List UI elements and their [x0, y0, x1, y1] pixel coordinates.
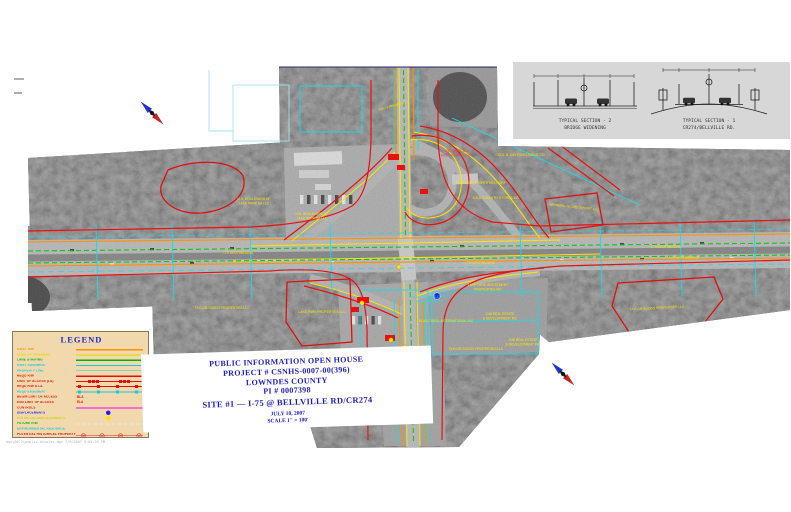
legend-sample-text: BLA	[77, 395, 83, 399]
legend-sample	[76, 416, 143, 421]
section1-title: TYPICAL SECTION - 1	[683, 118, 736, 124]
map-label: LAKE PARK GA LLC	[239, 202, 270, 206]
map-label: BRIDGE WIDENING	[441, 154, 472, 158]
highway-label: I-75 SOUTHBOUND	[651, 245, 682, 249]
map-label: PROPERTIES INC	[416, 300, 444, 304]
legend-label: LANE STRIPING	[17, 359, 76, 362]
legend-label: FUTURE R/W	[17, 422, 76, 425]
highway-label: I-75 NORTHBOUND	[465, 261, 496, 265]
section2-bridge-diagram	[533, 74, 637, 108]
legend-label: POTENTIAL DISPLACEMENTS	[17, 417, 76, 420]
historic-property-symbol	[76, 433, 143, 438]
legend-sample	[76, 405, 143, 410]
section1-subtitle: CR274/BELLVILLE RD.	[683, 125, 736, 131]
legend-sample	[76, 379, 143, 384]
map-label: EASTGATE PROPERTIES CORP	[456, 181, 507, 185]
boundary-lines-cyan	[209, 70, 289, 141]
legend-sample	[76, 368, 143, 373]
map-label: U.S. BOULEVARD OF	[296, 212, 329, 216]
map-label: LAKE PARK INVESTMENT	[410, 295, 450, 299]
legend-sample	[76, 384, 143, 389]
legend-label: EXIST R/W	[17, 348, 76, 351]
section2-subtitle: BRIDGE WIDENING	[564, 125, 606, 131]
map-label: NEW RAMP 'B' &	[443, 149, 469, 153]
legend-sample	[76, 432, 143, 437]
map-label: JNB REAL ESTATE	[486, 312, 516, 316]
map-label: TAYLOR-SUGGS PROPERTIES LLC	[195, 306, 250, 310]
legend-sample	[76, 421, 143, 426]
legend-sample: BLA	[76, 395, 143, 400]
legend-sample	[76, 352, 143, 357]
legend-label: EXIST EASEMENT	[17, 364, 76, 367]
map-label: BLUE CREEK INTERNATIONAL INC	[419, 319, 474, 323]
legend-sample	[76, 390, 143, 395]
legend-label: DISPLACEMENTS	[17, 412, 76, 415]
legend-sample	[76, 411, 143, 416]
legend-sample	[76, 363, 143, 368]
legend-title: LEGEND	[13, 335, 149, 345]
map-label: LAKE PARK PROPERTIES LLC	[298, 310, 346, 314]
highway-label: I-75 SOUTHBOUND	[223, 251, 254, 255]
map-label: LAKE PARK GA LLC	[297, 217, 328, 221]
legend-sample: ELA	[76, 400, 143, 405]
legend-label: END LIMIT OF ACCESS	[17, 401, 76, 404]
typical-sections-panel: TYPICAL SECTION - 2 BRIDGE WIDENING TYPI…	[513, 62, 790, 139]
section2-title: TYPICAL SECTION - 2	[559, 118, 612, 124]
legend-label: REQD R/W	[17, 375, 76, 378]
legend-label: REQD EASEMENT	[17, 390, 76, 393]
map-label: TAYLOR-SUGGS PROPERTIES LLC	[449, 347, 504, 351]
title-block: PUBLIC INFORMATION OPEN HOUSE PROJECT # …	[141, 345, 433, 432]
legend-row: POTENTIAL HISTORICAL PROPERTY	[13, 432, 149, 437]
map-label: PROPERTIES INC	[474, 288, 502, 292]
north-arrow-icon	[550, 361, 577, 388]
legend-label: BEGIN LIMIT OF ACCESS	[17, 396, 76, 399]
highway-label: I-75 NORTHBOUND	[669, 256, 700, 260]
legend-sample	[76, 347, 143, 352]
legend-sample	[76, 358, 143, 363]
legend-sample	[76, 427, 143, 432]
legend-sample	[76, 374, 143, 379]
file-path-note: dgn\0072\public-display.dgn 7/9/2007 3:0…	[6, 440, 306, 448]
legend-label: PROPERTY LINE	[17, 369, 76, 372]
map-label: JNB REAL ESTATE	[509, 338, 539, 342]
legend-label: REQD R/W & LA	[17, 385, 76, 388]
legend-panel: LEGEND EXIST R/W EDGE OF PAVEMENT LANE S…	[12, 331, 149, 438]
plan-sheet: KELLY PROPERTY NEW RAMP 'B' & BRIDGE WID…	[0, 0, 791, 512]
legend-label: CONTROLS	[17, 406, 76, 409]
corner-annotation	[14, 78, 24, 94]
legend-label: EDGE OF PAVEMENT	[17, 353, 76, 356]
map-label: A & D COUNTRY STORES INC	[473, 196, 520, 200]
typical-section-diagrams: TYPICAL SECTION - 2 BRIDGE WIDENING TYPI…	[513, 62, 790, 139]
map-label: LAKE PARK INVESTMENT	[468, 283, 508, 287]
map-label: & DEVELOPMENT INC	[506, 343, 541, 347]
legend-label: LIMIT OF ACCESS (LA)	[17, 380, 76, 383]
map-label: U.S. BOULEVARD OF	[238, 197, 271, 201]
file-path-text: dgn\0072\public-display.dgn 7/9/2007 3:0…	[6, 440, 306, 444]
legend-sample-text: ELA	[77, 401, 83, 405]
section1-road-diagram	[651, 68, 767, 114]
north-arrow-icon	[139, 100, 166, 127]
map-label: CECIL B. DAY INVESTMENT CO	[496, 153, 545, 157]
map-label: & DEVELOPMENT INC	[483, 317, 518, 321]
legend-label: ENVIRONMENTAL RESOURCE	[17, 428, 76, 431]
legend-label: POTENTIAL HISTORICAL PROPERTY	[17, 433, 76, 436]
